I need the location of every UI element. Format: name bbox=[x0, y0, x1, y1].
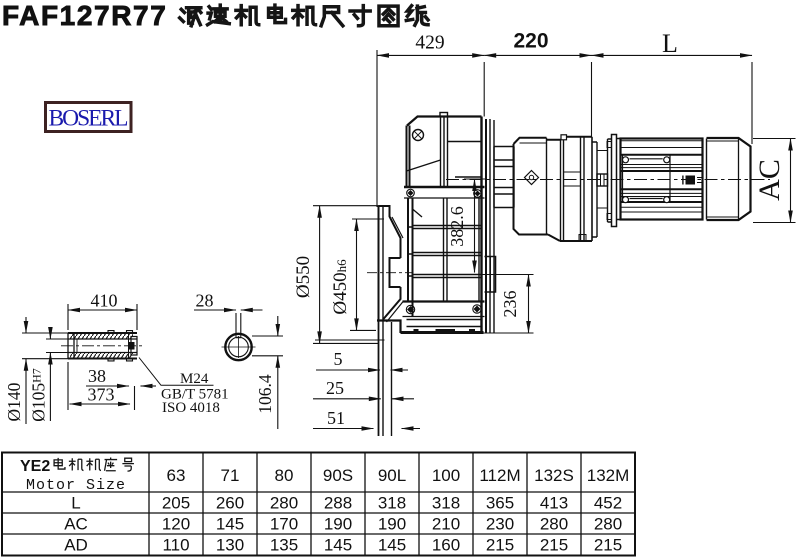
svg-text:71: 71 bbox=[221, 466, 240, 485]
svg-text:5: 5 bbox=[334, 349, 343, 369]
svg-text:132S: 132S bbox=[534, 466, 574, 485]
svg-text:452: 452 bbox=[594, 494, 622, 513]
svg-text:M24: M24 bbox=[180, 371, 209, 387]
svg-text:230: 230 bbox=[486, 515, 514, 534]
svg-text:100: 100 bbox=[432, 466, 460, 485]
svg-text:210: 210 bbox=[432, 515, 460, 534]
svg-text:280: 280 bbox=[594, 515, 622, 534]
svg-text:190: 190 bbox=[378, 515, 406, 534]
svg-text:220: 220 bbox=[513, 30, 548, 53]
svg-text:382.6: 382.6 bbox=[447, 206, 467, 247]
svg-text:280: 280 bbox=[540, 515, 568, 534]
svg-text:Ø550: Ø550 bbox=[293, 256, 314, 298]
svg-text:38: 38 bbox=[88, 366, 106, 386]
svg-text:L: L bbox=[662, 29, 678, 58]
svg-text:AC: AC bbox=[753, 159, 786, 201]
svg-text:145: 145 bbox=[216, 515, 244, 534]
svg-text:Motor Size: Motor Size bbox=[26, 477, 126, 494]
svg-text:365: 365 bbox=[486, 494, 514, 513]
svg-text:170: 170 bbox=[270, 515, 298, 534]
svg-text:205: 205 bbox=[162, 494, 190, 513]
svg-text:YE2: YE2 bbox=[20, 458, 50, 475]
svg-text:280: 280 bbox=[270, 494, 298, 513]
svg-text:318: 318 bbox=[378, 494, 406, 513]
svg-text:318: 318 bbox=[432, 494, 460, 513]
svg-text:373: 373 bbox=[88, 385, 115, 405]
svg-text:135: 135 bbox=[270, 536, 298, 555]
svg-text:110: 110 bbox=[162, 536, 189, 555]
svg-text:BOSERL: BOSERL bbox=[49, 106, 129, 132]
svg-text:130: 130 bbox=[216, 536, 244, 555]
svg-text:63: 63 bbox=[167, 466, 186, 485]
svg-text:120: 120 bbox=[162, 515, 190, 534]
svg-text:132M: 132M bbox=[587, 466, 630, 485]
svg-text:25: 25 bbox=[326, 378, 344, 398]
svg-text:90L: 90L bbox=[378, 466, 406, 485]
svg-text:215: 215 bbox=[540, 536, 568, 555]
svg-text:90S: 90S bbox=[323, 466, 353, 485]
svg-text:AD: AD bbox=[64, 536, 88, 555]
svg-text:429: 429 bbox=[415, 33, 444, 54]
svg-text:260: 260 bbox=[216, 494, 244, 513]
svg-text:106.4: 106.4 bbox=[255, 374, 275, 414]
svg-text:160: 160 bbox=[432, 536, 460, 555]
svg-text:215: 215 bbox=[486, 536, 514, 555]
svg-text:ISO 4018: ISO 4018 bbox=[162, 400, 220, 416]
svg-text:145: 145 bbox=[324, 536, 352, 555]
svg-text:Ø450h6: Ø450h6 bbox=[330, 259, 351, 315]
svg-text:FAF127R77: FAF127R77 bbox=[2, 0, 167, 31]
svg-text:51: 51 bbox=[327, 408, 345, 428]
svg-text:L: L bbox=[71, 494, 80, 513]
svg-text:112M: 112M bbox=[479, 466, 520, 485]
svg-text:Ø140: Ø140 bbox=[4, 382, 24, 421]
svg-text:236: 236 bbox=[500, 291, 520, 318]
svg-text:145: 145 bbox=[378, 536, 406, 555]
svg-text:413: 413 bbox=[540, 494, 568, 513]
svg-text:288: 288 bbox=[324, 494, 352, 513]
svg-text:410: 410 bbox=[91, 291, 118, 311]
svg-text:28: 28 bbox=[196, 291, 214, 311]
svg-text:80: 80 bbox=[275, 466, 294, 485]
svg-text:190: 190 bbox=[324, 515, 352, 534]
svg-text:AC: AC bbox=[64, 515, 88, 534]
svg-text:215: 215 bbox=[594, 536, 622, 555]
